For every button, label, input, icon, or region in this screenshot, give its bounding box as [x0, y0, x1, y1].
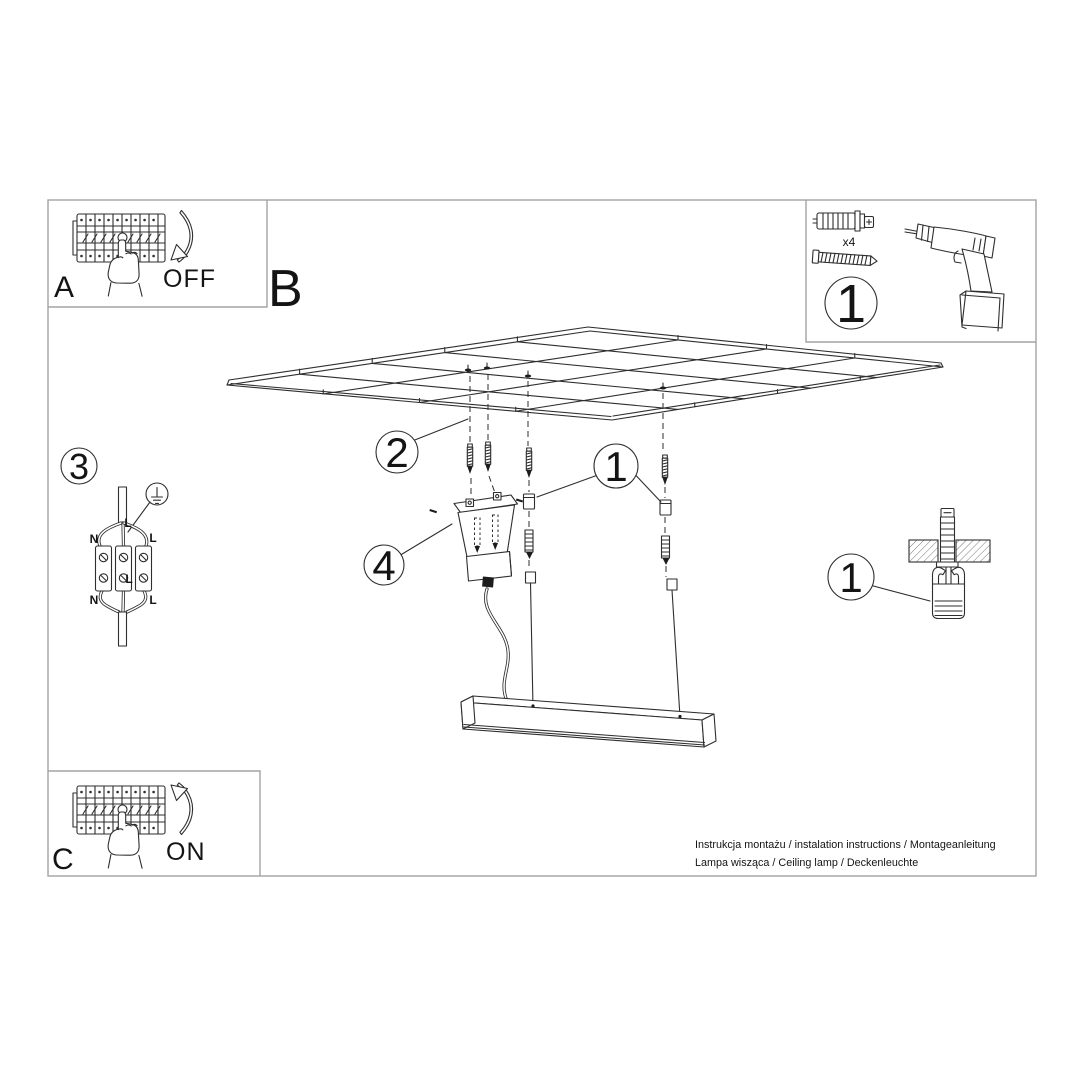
- callout-screws-number: 2: [385, 429, 408, 476]
- anchor-qty-label: x4: [843, 235, 856, 249]
- callout-anchor-detail-number: 1: [839, 554, 862, 601]
- instruction-sheet: A OFF B x4 1: [0, 0, 1080, 1080]
- cable-plug: [482, 577, 494, 588]
- tools-callout-number: 1: [836, 274, 866, 334]
- callout-canopy-number: 4: [372, 542, 395, 589]
- installation-diagram: A OFF B x4 1: [0, 0, 1080, 1080]
- wire-label-l-bottom: L: [149, 593, 156, 607]
- wall-plug-icon: [813, 211, 874, 231]
- wire-label-center: L: [125, 572, 132, 586]
- terminal-block: [96, 546, 152, 591]
- wire-label-n-top: N: [90, 532, 99, 546]
- callout-suspension-number: 1: [604, 443, 627, 490]
- lamp-cable: [119, 612, 127, 646]
- footer-line2: Lampa wisząca / Ceiling lamp / Deckenleu…: [695, 857, 918, 869]
- step-a-label: A: [54, 271, 74, 304]
- wiring-callout-number: 3: [69, 446, 89, 487]
- off-label: OFF: [163, 265, 216, 293]
- wire-label-entry: L: [124, 516, 131, 530]
- wire-label-n-bottom: N: [90, 593, 99, 607]
- on-label: ON: [166, 838, 206, 866]
- wire-label-l-top: L: [149, 531, 156, 545]
- step-b-label: B: [268, 260, 303, 318]
- footer-line1: Instrukcja montażu / instalation instruc…: [695, 839, 996, 851]
- step-c-label: C: [52, 843, 74, 876]
